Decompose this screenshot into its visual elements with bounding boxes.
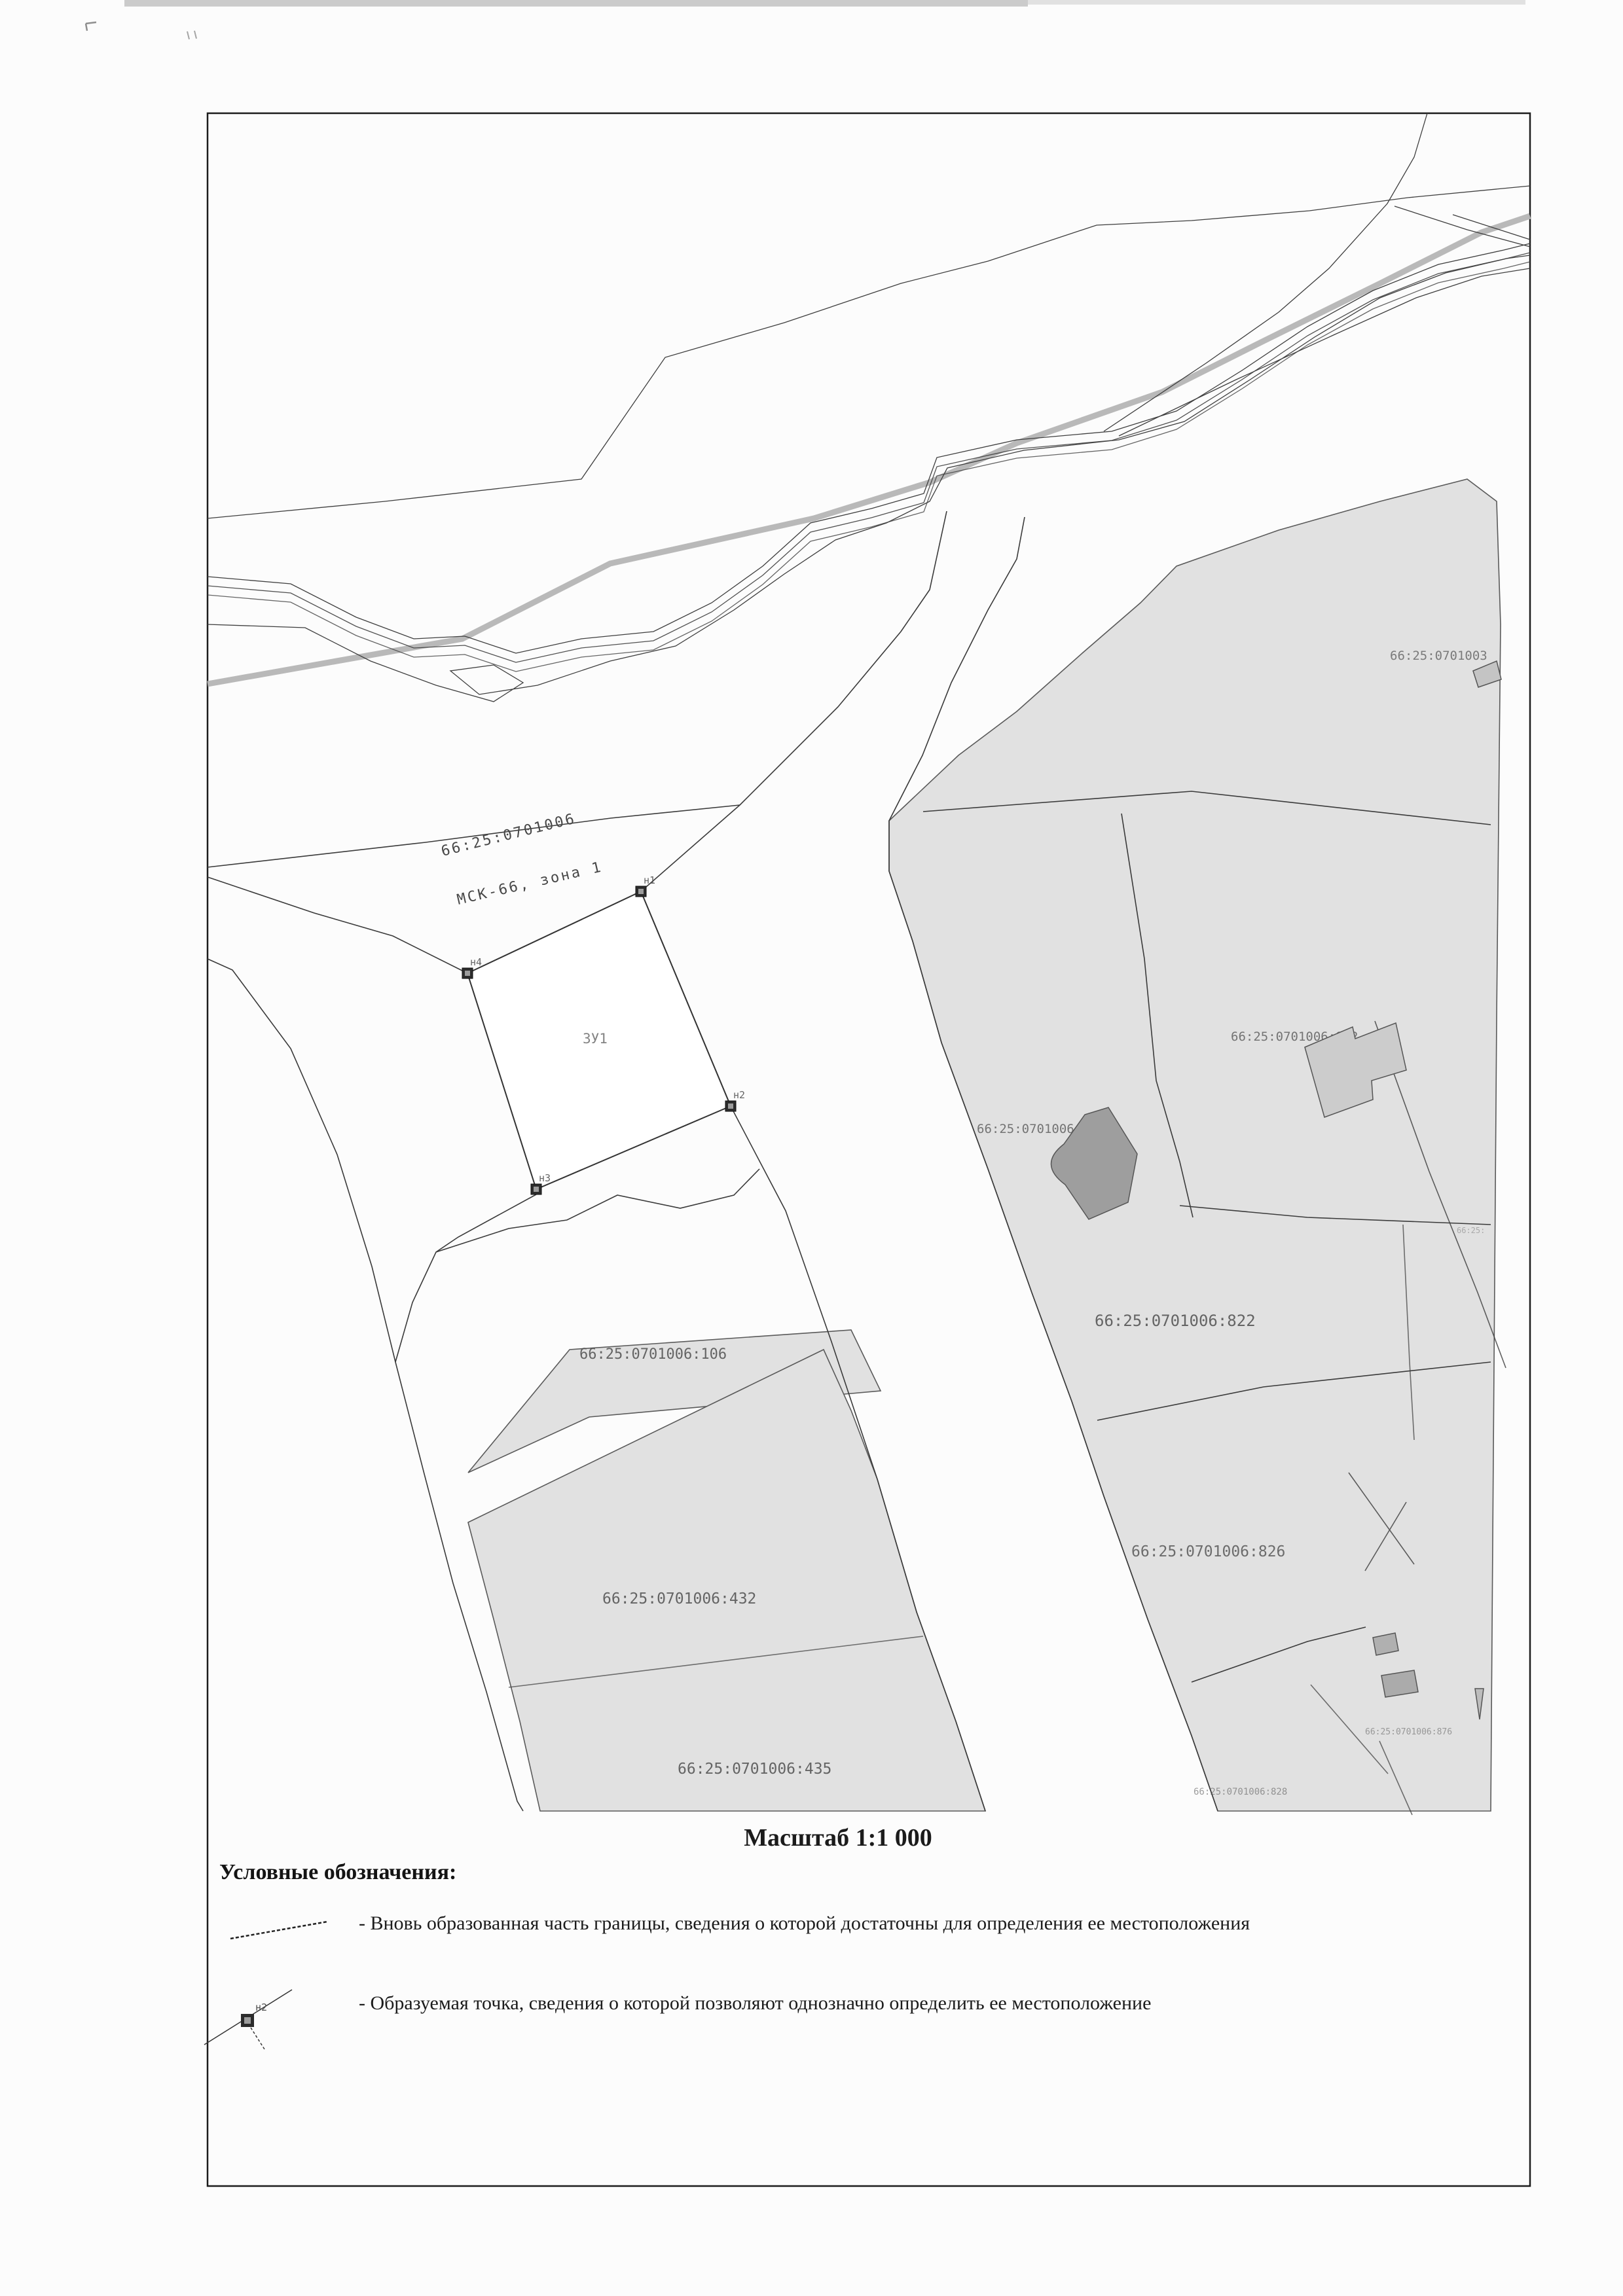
scan-mark [187, 31, 196, 39]
legend-point-symbol-square-inner [244, 2017, 251, 2024]
legend-item-boundary-text: - Вновь образованная часть границы, свед… [359, 1909, 1328, 1939]
boundary-n3-spur [395, 1194, 536, 1362]
label-parcel-faint: 66:25: [1457, 1226, 1485, 1235]
label-coordinate-system: МСК-66, зона 1 [456, 859, 604, 908]
legend-item-point-text: - Образуемая точка, сведения о которой п… [359, 1988, 1328, 2018]
legend-symbols: н2 [204, 1922, 327, 2049]
label-parcel-826: 66:25:0701006:826 [1131, 1543, 1285, 1560]
building-bottom-right-2 [1381, 1670, 1418, 1697]
label-cadastral-quarter: 66:25:0701006 [439, 810, 577, 859]
point-square-inner [465, 971, 470, 976]
scan-streak [124, 0, 1028, 7]
legend-point-symbol-tick [251, 2028, 264, 2049]
label-parcel-828: 66:25:0701006:828 [1194, 1787, 1287, 1797]
point-label-н1: н1 [644, 874, 655, 886]
point-label-н2: н2 [733, 1089, 745, 1101]
cadastral-map-drawing: 66:25:0701006МСК-66, зона 166:25:0701003… [0, 0, 1623, 2296]
point-label-н3: н3 [539, 1172, 551, 1184]
point-label-н4: н4 [470, 956, 482, 968]
legend-point-label: н2 [255, 2001, 267, 2013]
label-parcel-432: 66:25:0701006:432 [602, 1590, 756, 1607]
scan-streak [1028, 0, 1525, 5]
label-parcel-0701003: 66:25:0701003 [1390, 649, 1487, 663]
scanned-cadastral-scheme-page: { "colors": { "parcel_fill": "#e1e1e1", … [0, 0, 1623, 2296]
label-parcel-435: 66:25:0701006:435 [678, 1761, 831, 1778]
label-parcel-876: 66:25:0701006:876 [1365, 1727, 1452, 1737]
map-scale-label: Масштаб 1:1 000 [576, 1823, 1100, 1852]
scan-artifacts [86, 0, 1525, 39]
label-new-parcel-zu1: ЗУ1 [583, 1031, 608, 1047]
point-square-inner [638, 889, 644, 894]
scan-mark [86, 22, 96, 31]
point-square-inner [534, 1187, 539, 1192]
building-bottom-right-1 [1373, 1633, 1398, 1655]
point-square-inner [728, 1103, 733, 1109]
contour-branch-right [1119, 268, 1530, 436]
label-parcel-822: 66:25:0701006:822 [1095, 1312, 1256, 1330]
boundary-wavy [436, 1169, 759, 1252]
label-parcel-106: 66:25:0701006:106 [579, 1346, 727, 1363]
legend-title: Условные обозначения: [219, 1860, 456, 1885]
parcel-area-right [889, 479, 1501, 1811]
legend-boundary-line-symbol [230, 1922, 327, 1939]
contour-branch-top [1104, 113, 1427, 431]
boundary-point-н1: н1 [636, 874, 655, 897]
contour-upper [208, 186, 1530, 518]
boundary-left-long [208, 959, 523, 1811]
boundary-to-n4 [208, 877, 467, 973]
